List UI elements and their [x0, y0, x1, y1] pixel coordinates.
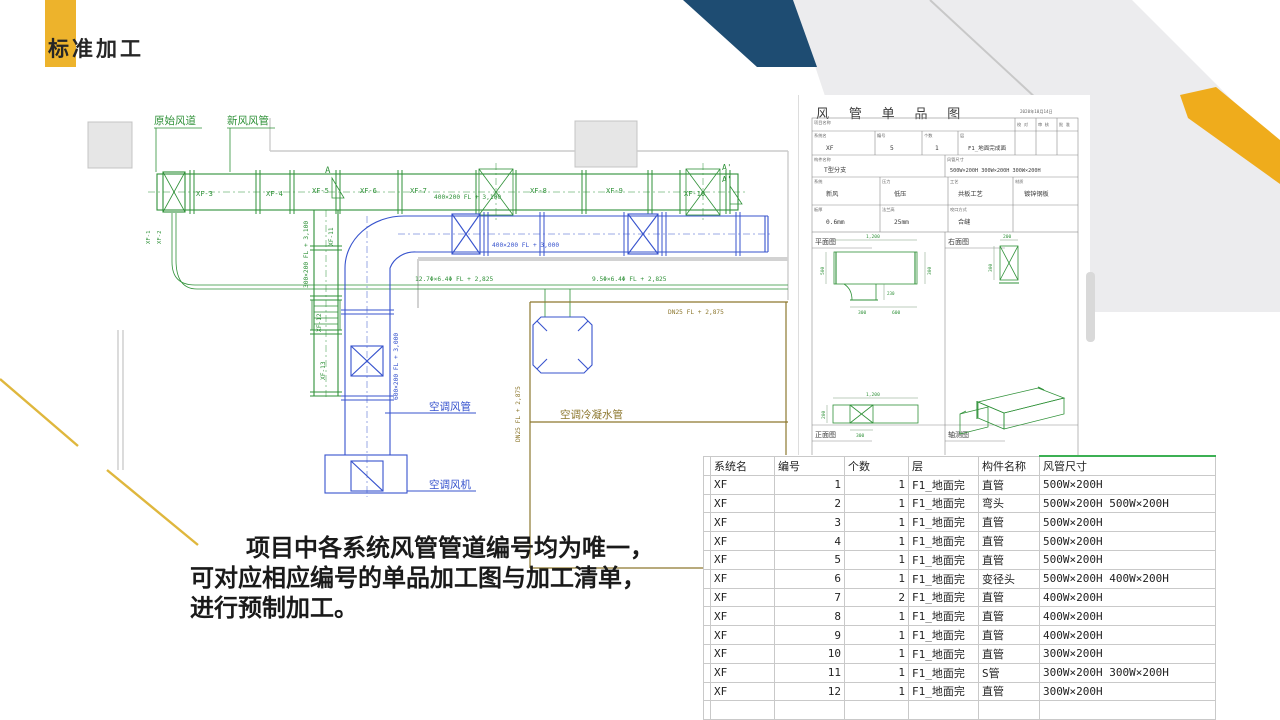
field-label: 压力 — [882, 178, 890, 185]
table-cell: 400W×200H — [1040, 588, 1216, 607]
table-cell: 直管 — [979, 588, 1040, 607]
ac-fan-unit — [325, 455, 407, 493]
table-cell: 直管 — [979, 644, 1040, 663]
duct-dimension-text: 400×200 FL + 3,100 — [434, 194, 501, 201]
table-cell: S管 — [979, 663, 1040, 682]
table-cell: XF — [711, 588, 775, 607]
svg-text:空调风管: 空调风管 — [429, 400, 471, 413]
table-cell — [775, 701, 845, 720]
field-value: 镀锌钢板 — [1024, 190, 1049, 198]
field-label: 材质 — [1015, 178, 1023, 185]
table-cell: F1_地面完 — [909, 663, 979, 682]
table-row: XF61F1_地面完变径头500W×200H 400W×200H — [704, 569, 1216, 588]
table-cell: 500W×200H — [1040, 475, 1216, 494]
table-cell: 8 — [775, 607, 845, 626]
table-row: XF91F1_地面完直管400W×200H — [704, 626, 1216, 645]
duct-dimension-text: 400×200 FL + 3,000 — [492, 242, 559, 249]
table-cell: 3 — [775, 513, 845, 532]
dim-text: 200 — [1003, 234, 1012, 240]
table-cell: 400W×200H — [1040, 626, 1216, 645]
table-cell: F1_地面完 — [909, 607, 979, 626]
table-cell — [704, 682, 711, 701]
svg-text:A: A — [325, 166, 331, 176]
table-cell — [704, 701, 711, 720]
table-row: XF101F1_地面完直管300W×200H — [704, 644, 1216, 663]
table-row: XF31F1_地面完直管500W×200H — [704, 513, 1216, 532]
pipe-dimension-text: 12.7Φ×6.4Φ FL + 2,825 — [415, 276, 494, 283]
field-label: 项目名称 — [814, 119, 831, 126]
table-cell: F1_地面完 — [909, 626, 979, 645]
field-label: 构件名称 — [814, 156, 831, 163]
table-cell — [704, 626, 711, 645]
field-value: XF — [826, 145, 834, 152]
duct-segment-label: XF-2 — [157, 231, 163, 244]
duct-segment-label: XF-12 — [316, 313, 323, 332]
table-cell: 9 — [775, 626, 845, 645]
view-label-right: 右面图 — [948, 237, 969, 246]
svg-text:新风风管: 新风风管 — [227, 114, 269, 127]
table-row: XF51F1_地面完直管500W×200H — [704, 550, 1216, 569]
table-cell: 1 — [845, 475, 909, 494]
table-cell: F1_地面完 — [909, 550, 979, 569]
table-cell: F1_地面完 — [909, 475, 979, 494]
field-value: F1_地面完成面 — [968, 144, 1006, 152]
dim-text: 200 — [821, 410, 827, 419]
table-row: XF72F1_地面完直管400W×200H — [704, 588, 1216, 607]
field-label: 系统 — [814, 178, 822, 185]
table-cell: 1 — [845, 550, 909, 569]
field-value: 合缝 — [958, 218, 970, 226]
field-value: T型分支 — [824, 166, 846, 174]
duct-dimension-text: 600×200 FL + 3,000 — [393, 333, 400, 400]
field-value: 500W×200H 300W×200H 300W×200H — [950, 168, 1041, 174]
wall-lines — [88, 118, 788, 470]
table-cell — [704, 569, 711, 588]
table-cell: XF — [711, 532, 775, 551]
table-row — [704, 701, 1216, 720]
table-cell — [704, 663, 711, 682]
field-label: 咬口方式 — [950, 206, 968, 213]
table-cell: XF — [711, 494, 775, 513]
duct-dimension-text: 300×200 FL + 3,100 — [303, 221, 310, 288]
table-cell — [704, 494, 711, 513]
table-cell: 300W×200H 300W×200H — [1040, 663, 1216, 682]
field-value: 0.6mm — [826, 219, 845, 226]
pipe-dimension-text: DN25 FL + 2,875 — [668, 309, 724, 316]
duct-segment-label: XF-1 — [146, 231, 152, 244]
field-label: 工艺 — [950, 179, 958, 184]
table-cell: 直管 — [979, 513, 1040, 532]
table-row: XF21F1_地面完弯头500W×200H 500W×200H — [704, 494, 1216, 513]
field-value: 新风 — [826, 190, 838, 198]
table-cell — [845, 701, 909, 720]
panel-scrollbar-thumb[interactable] — [1086, 272, 1095, 342]
duct-segment-label: XF-13 — [320, 361, 327, 380]
table-cell: 1 — [845, 569, 909, 588]
svg-text:原始风道: 原始风道 — [154, 114, 196, 127]
col-header-count: 个数 — [845, 456, 909, 475]
table-cell: F1_地面完 — [909, 494, 979, 513]
field-label: 系统名 — [814, 132, 827, 139]
table-cell — [704, 513, 711, 532]
pipe-dimension-text: 9.5Φ×6.4Φ FL + 2,825 — [592, 276, 667, 283]
slide: XF-3 XF-4 XF-5 XF-6 XF-7 400×200 FL + 3,… — [0, 0, 1280, 720]
body-line-3: 进行预制加工。 — [190, 594, 700, 624]
table-cell — [704, 607, 711, 626]
duct-segment-label: XF-11 — [328, 227, 335, 246]
page-title: 标准加工 — [48, 33, 144, 63]
dim-text: 300 — [988, 263, 994, 272]
callout-ac-duct: 空调风管 — [385, 400, 476, 413]
duct-segment-label: XF-4 — [266, 190, 283, 198]
table-cell: 500W×200H — [1040, 532, 1216, 551]
field-label: 校 对 — [1017, 121, 1028, 128]
table-cell — [711, 701, 775, 720]
table-cell: 2 — [775, 494, 845, 513]
table-cell: 300W×200H — [1040, 682, 1216, 701]
table-header-row: 系统名 编号 个数 层 构件名称 风管尺寸 — [704, 456, 1216, 475]
table-cell — [704, 588, 711, 607]
table-cell: XF — [711, 513, 775, 532]
table-cell: 直管 — [979, 475, 1040, 494]
table-cell: XF — [711, 644, 775, 663]
table-cell: 直管 — [979, 626, 1040, 645]
duct-segment-label: XF-6 — [360, 187, 377, 195]
table-cell: 4 — [775, 532, 845, 551]
bom-table: 系统名 编号 个数 层 构件名称 风管尺寸 XF11F1_地面完直管500W×2… — [703, 455, 1216, 720]
field-value: 25mm — [894, 219, 909, 226]
table-cell: 11 — [775, 663, 845, 682]
fan-coil-unit — [533, 317, 592, 373]
field-label: 板厚 — [814, 206, 822, 213]
table-cell: XF — [711, 682, 775, 701]
callout-original-duct: 原始风道 — [154, 114, 202, 172]
dim-text: 1,200 — [866, 392, 880, 398]
table-cell: 直管 — [979, 682, 1040, 701]
table-cell — [909, 701, 979, 720]
table-cell: 1 — [845, 532, 909, 551]
table-row: XF41F1_地面完直管500W×200H — [704, 532, 1216, 551]
col-header-floor: 层 — [909, 456, 979, 475]
main-fresh-air-duct: XF-3 XF-4 XF-5 XF-6 XF-7 400×200 FL + 3,… — [146, 163, 745, 244]
dim-text: 1,200 — [866, 234, 880, 240]
table-cell: 400W×200H — [1040, 607, 1216, 626]
duct-segment-label: XF-10 — [684, 190, 705, 198]
col-header-system: 系统名 — [711, 456, 775, 475]
table-cell: 直管 — [979, 550, 1040, 569]
table-cell: XF — [711, 569, 775, 588]
table-cell: F1_地面完 — [909, 644, 979, 663]
table-cell: 1 — [775, 475, 845, 494]
table-cell: F1_地面完 — [909, 682, 979, 701]
table-cell: XF — [711, 626, 775, 645]
table-cell — [1040, 701, 1216, 720]
table-cell: 7 — [775, 588, 845, 607]
section-mark-a-prime: A' A' — [722, 163, 742, 204]
table-cell: 500W×200H 400W×200H — [1040, 569, 1216, 588]
table-cell: F1_地面完 — [909, 513, 979, 532]
table-cell: 1 — [845, 626, 909, 645]
table-cell: 1 — [845, 663, 909, 682]
table-cell: XF — [711, 607, 775, 626]
table-cell: 500W×200H — [1040, 513, 1216, 532]
table-row: XF81F1_地面完直管400W×200H — [704, 607, 1216, 626]
callout-ac-fan: 空调风机 — [407, 478, 476, 491]
table-cell: 6 — [775, 569, 845, 588]
single-item-panel: 风 管 单 品 图 2020年10月14日 项目名称 — [798, 95, 1095, 460]
green-riser-duct: 300×200 FL + 3,100 XF-11 XF-12 XF-13 — [303, 210, 342, 400]
dim-text: 500 — [820, 266, 826, 275]
duct-segment-label: XF-8 — [530, 187, 547, 195]
table-cell — [704, 532, 711, 551]
table-cell — [704, 644, 711, 663]
table-cell: F1_地面完 — [909, 532, 979, 551]
table-row: XF121F1_地面完直管300W×200H — [704, 682, 1216, 701]
table-row: XF11F1_地面完直管500W×200H — [704, 475, 1216, 494]
panel-title: 风 管 单 品 图 — [816, 107, 966, 122]
panel-date: 2020年10月14日 — [1020, 108, 1053, 115]
table-cell: 12 — [775, 682, 845, 701]
table-cell: 1 — [845, 494, 909, 513]
duct-segment-label: XF-3 — [196, 190, 213, 198]
table-cell: XF — [711, 475, 775, 494]
field-value: 低压 — [894, 190, 906, 198]
table-cell: XF — [711, 663, 775, 682]
svg-text:A': A' — [722, 163, 732, 172]
dim-text: 600 — [892, 310, 901, 316]
table-cell: XF — [711, 550, 775, 569]
svg-text:A': A' — [722, 175, 732, 184]
table-cell: F1_地面完 — [909, 588, 979, 607]
col-header-number: 编号 — [775, 456, 845, 475]
table-cell: 5 — [775, 550, 845, 569]
pipe-dimension-text: DN25 FL + 2,875 — [515, 386, 522, 442]
body-line-2: 可对应相应编号的单品加工图与加工清单， — [190, 564, 700, 594]
col-header-size: 风管尺寸 — [1040, 456, 1216, 475]
field-label: 法兰高 — [882, 206, 895, 213]
svg-text:空调风机: 空调风机 — [429, 478, 471, 491]
table-cell: 直管 — [979, 532, 1040, 551]
col-header-spacer — [704, 456, 711, 475]
table-cell: 500W×200H 500W×200H — [1040, 494, 1216, 513]
field-label: 审 核 — [1038, 121, 1050, 128]
table-cell: 1 — [845, 513, 909, 532]
callout-condensate-pipe: 空调冷凝水管 — [560, 408, 623, 421]
table-cell: 500W×200H — [1040, 550, 1216, 569]
table-cell — [979, 701, 1040, 720]
view-label-front: 正面图 — [815, 431, 836, 439]
dim-text: 300 — [858, 310, 867, 316]
dim-text: 300 — [927, 266, 933, 275]
dim-text: 300 — [856, 433, 865, 439]
duct-segment-label: XF-7 — [410, 187, 427, 195]
table-cell: 1 — [845, 682, 909, 701]
table-cell: F1_地面完 — [909, 569, 979, 588]
callout-fresh-air-duct: 新风风管 — [227, 114, 275, 172]
field-label: 个数 — [924, 132, 933, 139]
view-label-plan: 平面图 — [815, 238, 836, 246]
table-cell: 10 — [775, 644, 845, 663]
field-value: 1 — [935, 145, 939, 152]
table-cell: 弯头 — [979, 494, 1040, 513]
field-label: 批 准 — [1059, 121, 1070, 128]
dim-text: 230 — [887, 291, 895, 296]
view-label-axon: 轴测图 — [948, 430, 969, 439]
table-cell: 直管 — [979, 607, 1040, 626]
table-cell: 变径头 — [979, 569, 1040, 588]
duct-segment-label: XF-5 — [312, 187, 329, 195]
table-row: XF111F1_地面完S管300W×200H 300W×200H — [704, 663, 1216, 682]
field-label: 编号 — [877, 132, 885, 139]
body-line-1: 项目中各系统风管管道编号均为唯一， — [190, 534, 700, 564]
col-header-part: 构件名称 — [979, 456, 1040, 475]
table-cell — [704, 550, 711, 569]
field-value: 5 — [890, 145, 894, 152]
field-label: 风管尺寸 — [947, 156, 964, 163]
table-cell: 1 — [845, 607, 909, 626]
body-paragraph: 项目中各系统风管管道编号均为唯一， 可对应相应编号的单品加工图与加工清单， 进行… — [190, 534, 700, 624]
field-value: 共板工艺 — [958, 190, 983, 198]
table-cell: 300W×200H — [1040, 644, 1216, 663]
table-cell — [704, 475, 711, 494]
table-cell: 1 — [845, 644, 909, 663]
duct-segment-label: XF-9 — [606, 187, 623, 195]
table-cell: 2 — [845, 588, 909, 607]
